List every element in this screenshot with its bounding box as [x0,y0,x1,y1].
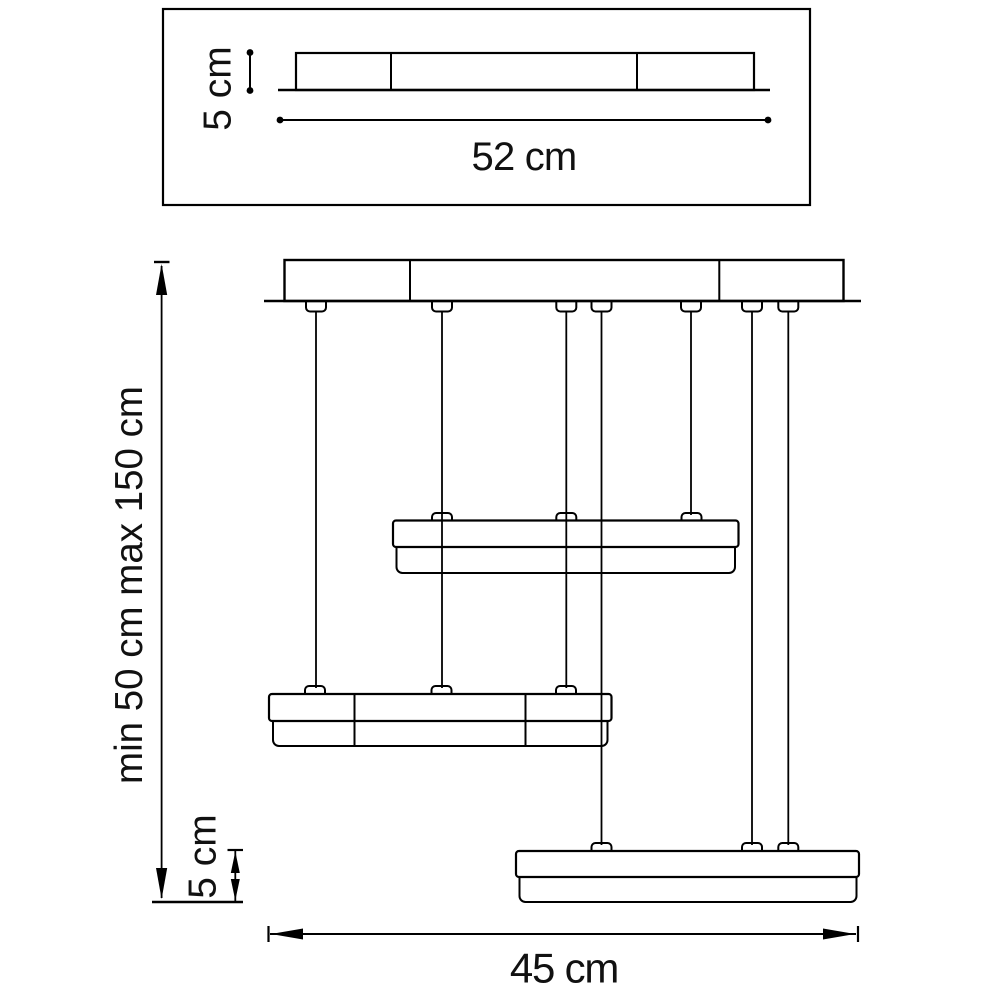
svg-text:min 50 cm max 150 cm: min 50 cm max 150 cm [108,386,151,784]
svg-text:45 cm: 45 cm [510,945,618,992]
svg-text:52 cm: 52 cm [472,135,577,179]
svg-text:5 cm: 5 cm [197,46,240,131]
svg-text:5 cm: 5 cm [182,814,225,899]
